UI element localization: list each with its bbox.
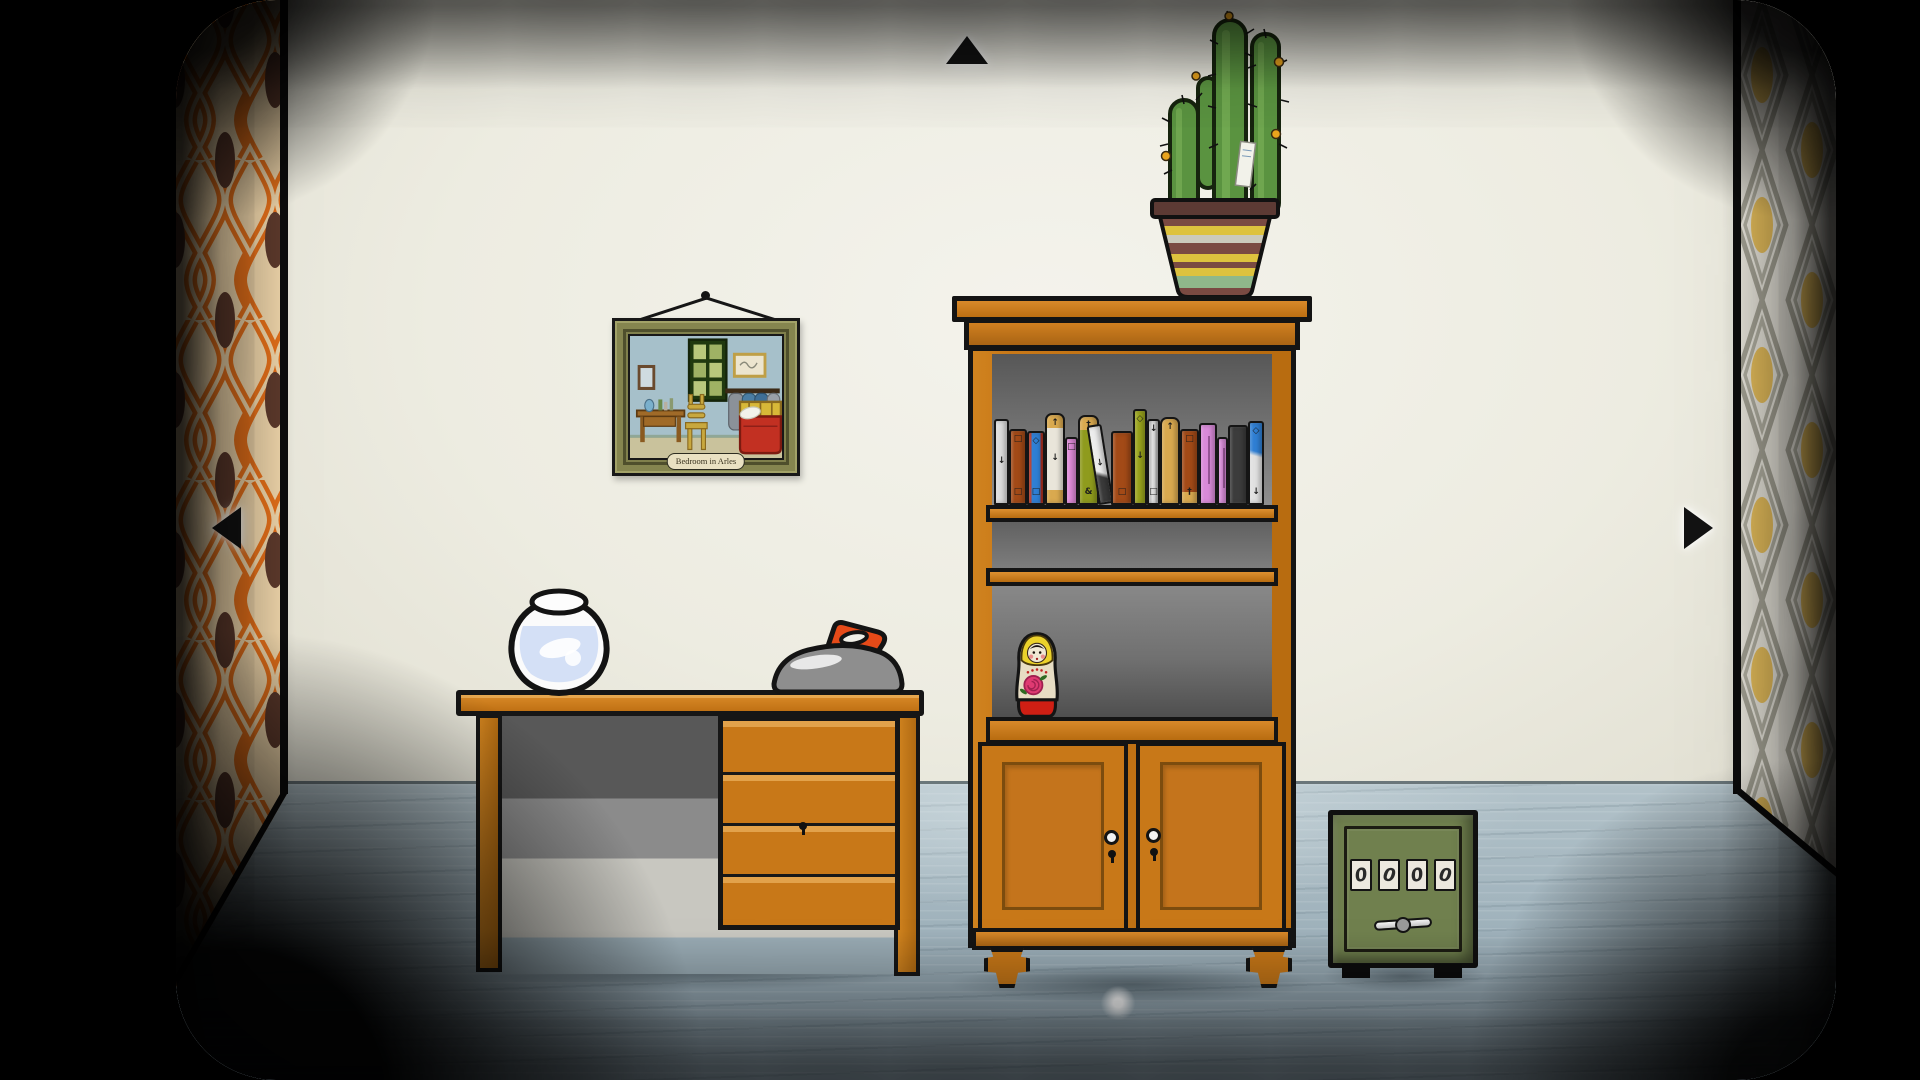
book-spine-5[interactable]: □ [1065,437,1078,505]
book-spine-4[interactable]: ↑↓ [1045,413,1065,505]
book-symbol: □ [1118,488,1127,498]
book-symbol: ↓ [998,457,1006,467]
painting-bedroom-in-arles[interactable]: Bedroom in Arles [612,318,800,476]
book-symbol: ◇ [1033,437,1040,447]
book-spine-2[interactable]: □□ [1009,429,1027,505]
nav-up-arrow-icon[interactable] [946,36,988,64]
book-spine-11[interactable]: ↑ [1160,417,1180,505]
book-row[interactable]: ↓□□◇□↑↓□†&↓□◇↓↓□↑□†◇↓ [994,405,1272,505]
right-wall-corner-line [1733,0,1741,794]
room-viewport: Bedroom in Arles [176,0,1836,1080]
book-symbol: □ [1067,443,1076,453]
fishbowl[interactable] [502,582,616,704]
book-spine-line [1208,436,1210,484]
left-door-knob[interactable] [1104,830,1119,845]
room-scene: Bedroom in Arles [176,0,1836,1080]
book-symbol: ↓ [1096,458,1105,469]
bookcase-shelf-board-1 [986,505,1278,522]
left-door-keyhole-icon [1108,850,1116,858]
desk-drawer-4[interactable] [723,874,895,925]
desk-drawer-1[interactable] [723,721,895,772]
safe[interactable]: 0000 [1328,810,1478,968]
book-symbol: ↑ [1166,423,1174,433]
book-spine-15[interactable] [1228,425,1248,505]
book-symbol: ↓ [1252,488,1260,498]
book-symbol [1104,487,1106,497]
book-symbol: □ [1014,435,1023,445]
book-spine-16[interactable]: ◇↓ [1248,421,1264,505]
book-spine-12[interactable]: □† [1180,429,1199,505]
book-symbol: ↓ [1136,452,1144,462]
book-spine-8[interactable]: □ [1111,431,1133,505]
safe-right-foot [1434,964,1462,978]
book-symbol: □ [1185,435,1194,445]
nav-right-arrow-icon[interactable] [1684,507,1713,549]
painting-canvas [628,334,784,460]
desk-drawer-2[interactable] [723,772,895,823]
book-spine-9[interactable]: ◇↓ [1133,409,1147,505]
right-door-knob[interactable] [1146,828,1161,843]
book-symbol: ↓ [1051,454,1059,464]
nav-left-arrow-icon[interactable] [212,507,241,549]
safe-dial-4[interactable]: 0 [1434,859,1456,891]
safe-dial-1[interactable]: 0 [1350,859,1372,891]
floor-glow-dot[interactable] [1099,986,1137,1020]
drawer-keyhole-icon[interactable] [799,822,807,830]
book-spine-3[interactable]: ◇□ [1027,431,1045,505]
book-spine-14[interactable] [1217,437,1228,505]
bookcase-bottom-rail [972,928,1292,950]
book-symbol: † [1187,488,1192,498]
matryoshka-doll[interactable] [1008,630,1066,720]
book-spine-1[interactable]: ↓ [994,419,1009,505]
bookcase-shelf-board-2 [986,568,1278,586]
book-symbol: □ [1032,488,1041,498]
book-symbol: □ [1014,488,1023,498]
book-symbol: ◇ [1253,427,1260,437]
book-symbol: ◇ [1137,415,1144,425]
bookcase-top-slab [952,296,1312,322]
bookcase-middle-shelf-interior [992,522,1272,570]
safe-dial-row[interactable]: 0000 [1350,859,1456,891]
safe-dial-2[interactable]: 0 [1378,859,1400,891]
desk-drawer-3[interactable] [723,823,895,874]
desk-left-leg [476,714,502,972]
bookcase-crown [964,318,1300,350]
right-wallpaper-wall [1737,0,1836,1080]
desk-drawer-unit[interactable] [718,716,900,930]
book-symbol: □ [1149,488,1158,498]
safe-left-foot [1342,964,1370,978]
clothes-iron[interactable] [766,620,908,700]
book-symbol [1095,431,1097,441]
cactus-plant[interactable] [1126,4,1338,300]
book-spine-line [1223,448,1225,488]
safe-dial-3[interactable]: 0 [1406,859,1428,891]
book-symbol: ↓ [1150,425,1158,435]
game-screen: Bedroom in Arles [0,0,1920,1080]
right-door-keyhole-icon [1150,848,1158,856]
painting-title-plaque: Bedroom in Arles [667,453,745,470]
book-symbol: ↑ [1051,419,1059,429]
book-spine-13[interactable] [1199,423,1217,505]
left-wall-corner-line [280,0,288,794]
book-symbol: & [1085,488,1093,498]
book-spine-10[interactable]: ↓□ [1147,419,1160,505]
bookcase-cabinet-rail [986,717,1278,744]
